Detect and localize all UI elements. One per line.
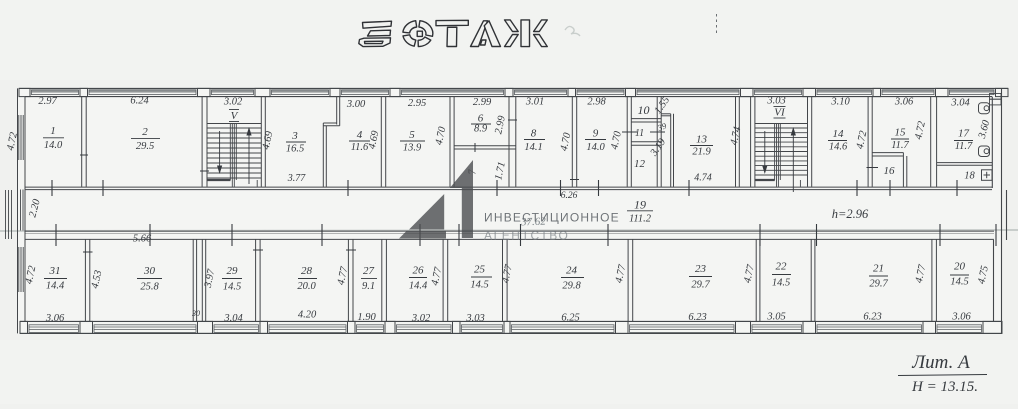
- svg-text:14.5: 14.5: [223, 282, 241, 293]
- svg-text:3.03: 3.03: [766, 96, 785, 107]
- svg-text:3: 3: [291, 130, 298, 142]
- svg-text:АГЕНТСТВО: АГЕНТСТВО: [484, 229, 569, 243]
- svg-text:26: 26: [413, 265, 425, 277]
- svg-text:3.03: 3.03: [465, 313, 484, 324]
- svg-text:14.0: 14.0: [586, 142, 605, 153]
- svg-text:2.99: 2.99: [473, 97, 492, 108]
- svg-text:13.9: 13.9: [403, 143, 422, 154]
- svg-text:6.23: 6.23: [688, 312, 706, 323]
- svg-text:19: 19: [634, 198, 646, 212]
- svg-text:Н = 13.15.: Н = 13.15.: [911, 379, 978, 395]
- svg-text:14.6: 14.6: [829, 142, 848, 153]
- svg-text:6.25: 6.25: [561, 313, 579, 324]
- svg-text:29.7: 29.7: [691, 280, 710, 291]
- svg-text:3.10: 3.10: [830, 97, 850, 108]
- svg-text:8: 8: [531, 128, 537, 140]
- svg-text:29: 29: [227, 265, 239, 277]
- svg-text:28: 28: [301, 265, 313, 277]
- svg-text:14.5: 14.5: [772, 278, 790, 289]
- svg-text:2.95: 2.95: [408, 98, 426, 109]
- svg-text:3.05: 3.05: [766, 312, 785, 323]
- svg-text:30: 30: [143, 265, 156, 277]
- svg-text:16.5: 16.5: [286, 144, 304, 155]
- svg-text:1.90: 1.90: [357, 312, 376, 323]
- svg-text:14.0: 14.0: [44, 140, 63, 151]
- svg-text:29.5: 29.5: [136, 141, 154, 152]
- svg-text:3.06: 3.06: [45, 313, 65, 324]
- svg-text:3.01: 3.01: [525, 97, 544, 108]
- svg-text:11: 11: [635, 128, 644, 139]
- svg-text:21: 21: [873, 263, 884, 275]
- svg-text:6.26: 6.26: [561, 191, 578, 201]
- svg-text:9: 9: [593, 128, 599, 140]
- svg-text:14.5: 14.5: [950, 277, 968, 288]
- svg-text:29.8: 29.8: [562, 281, 581, 292]
- svg-text:25: 25: [474, 264, 486, 276]
- svg-text:16: 16: [884, 165, 896, 177]
- svg-text:14.1: 14.1: [524, 142, 542, 153]
- svg-text:3.04: 3.04: [950, 98, 970, 109]
- svg-text:15: 15: [895, 127, 907, 139]
- svg-text:20: 20: [954, 261, 966, 273]
- svg-text:11.7: 11.7: [955, 141, 973, 152]
- svg-text:3.00: 3.00: [346, 99, 366, 110]
- svg-text:14: 14: [833, 128, 845, 140]
- svg-text:25.8: 25.8: [140, 282, 159, 293]
- svg-text:2.97: 2.97: [38, 96, 57, 107]
- svg-text:6.24: 6.24: [130, 96, 149, 107]
- svg-text:14.4: 14.4: [46, 281, 65, 292]
- svg-text:30: 30: [191, 309, 200, 318]
- svg-text:18: 18: [964, 171, 975, 182]
- svg-text:3.06: 3.06: [951, 312, 971, 323]
- svg-text:111.2: 111.2: [629, 214, 652, 225]
- svg-text:3.04: 3.04: [223, 313, 243, 324]
- svg-text:21.9: 21.9: [692, 147, 711, 158]
- svg-text:VI: VI: [774, 107, 786, 119]
- svg-text:11.7: 11.7: [891, 140, 909, 151]
- svg-text:3.06: 3.06: [894, 97, 914, 108]
- svg-text:14.5: 14.5: [470, 280, 488, 291]
- svg-text:3.02: 3.02: [223, 97, 243, 108]
- svg-text:14.4: 14.4: [409, 281, 428, 292]
- svg-text:22: 22: [776, 261, 788, 273]
- svg-text:ИНВЕСТИЦИОННОЕ: ИНВЕСТИЦИОННОЕ: [484, 211, 620, 225]
- svg-text:2.98: 2.98: [587, 97, 606, 108]
- svg-text:29.7: 29.7: [869, 279, 888, 290]
- svg-text:20.0: 20.0: [297, 281, 316, 292]
- svg-text:9.1: 9.1: [362, 281, 375, 292]
- svg-text:Лит. А: Лит. А: [911, 352, 970, 373]
- svg-text:4.74: 4.74: [694, 173, 712, 184]
- svg-text:10: 10: [638, 103, 650, 117]
- svg-text:17: 17: [958, 128, 970, 140]
- svg-text:12: 12: [634, 158, 646, 170]
- svg-text:13: 13: [696, 134, 708, 146]
- svg-text:5: 5: [409, 129, 415, 141]
- svg-text:5.66: 5.66: [133, 234, 152, 245]
- svg-text:1: 1: [50, 125, 56, 137]
- svg-text:2: 2: [142, 126, 148, 138]
- svg-text:3.77: 3.77: [287, 173, 307, 184]
- svg-text:24: 24: [566, 265, 578, 277]
- svg-text:4: 4: [357, 129, 363, 141]
- svg-text:27: 27: [363, 265, 375, 277]
- svg-text:3.02: 3.02: [411, 313, 431, 324]
- svg-text:23: 23: [695, 263, 707, 275]
- svg-text:31: 31: [49, 265, 61, 277]
- svg-text:6.23: 6.23: [863, 312, 881, 323]
- svg-text:h=2.96: h=2.96: [832, 207, 869, 221]
- svg-text:8.9: 8.9: [474, 124, 488, 135]
- svg-text:4.20: 4.20: [298, 310, 317, 321]
